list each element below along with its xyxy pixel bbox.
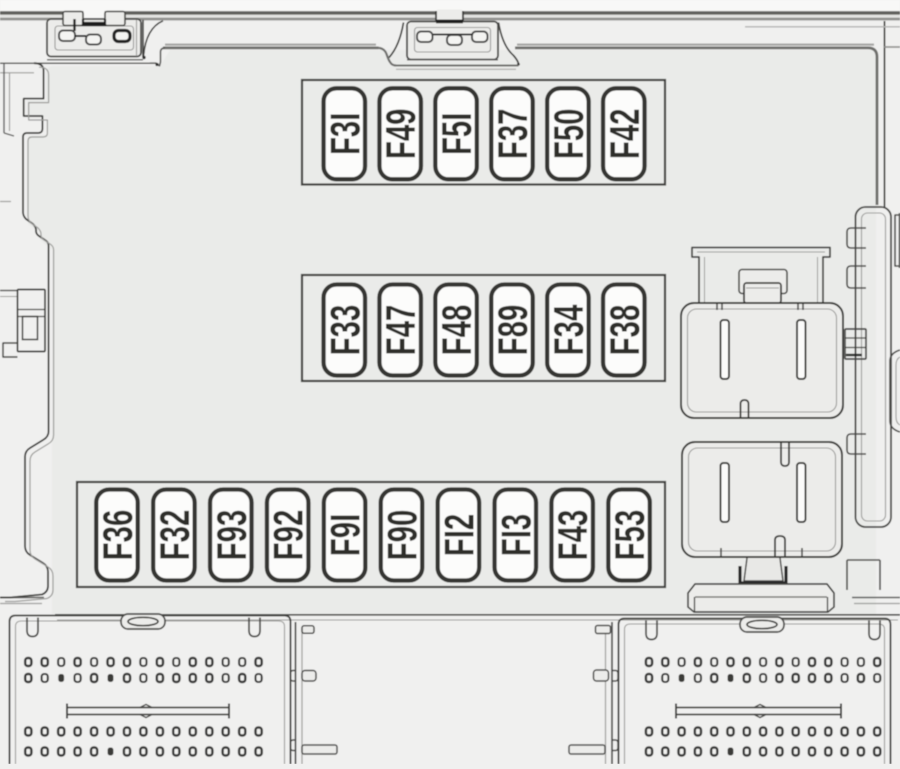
svg-text:FI3: FI3 xyxy=(492,514,540,556)
svg-text:F50: F50 xyxy=(545,108,593,159)
svg-text:F5I: F5I xyxy=(433,113,481,155)
svg-text:F92: F92 xyxy=(264,510,312,561)
svg-text:F48: F48 xyxy=(433,305,481,356)
svg-text:F47: F47 xyxy=(377,305,425,356)
svg-text:FI2: FI2 xyxy=(435,514,483,556)
svg-text:F53: F53 xyxy=(606,510,654,561)
svg-text:F37: F37 xyxy=(489,108,537,159)
svg-text:F38: F38 xyxy=(601,305,649,356)
svg-text:F36: F36 xyxy=(94,510,142,561)
svg-text:F9I: F9I xyxy=(321,514,369,556)
svg-text:F33: F33 xyxy=(321,305,369,356)
svg-text:F89: F89 xyxy=(489,305,537,356)
svg-text:F32: F32 xyxy=(151,510,199,561)
svg-text:F93: F93 xyxy=(208,510,256,561)
svg-text:F90: F90 xyxy=(378,510,426,561)
svg-text:F43: F43 xyxy=(549,510,597,561)
svg-text:F34: F34 xyxy=(545,305,593,356)
svg-text:F49: F49 xyxy=(377,108,425,159)
svg-text:F42: F42 xyxy=(601,108,649,159)
svg-text:F3I: F3I xyxy=(321,113,369,155)
